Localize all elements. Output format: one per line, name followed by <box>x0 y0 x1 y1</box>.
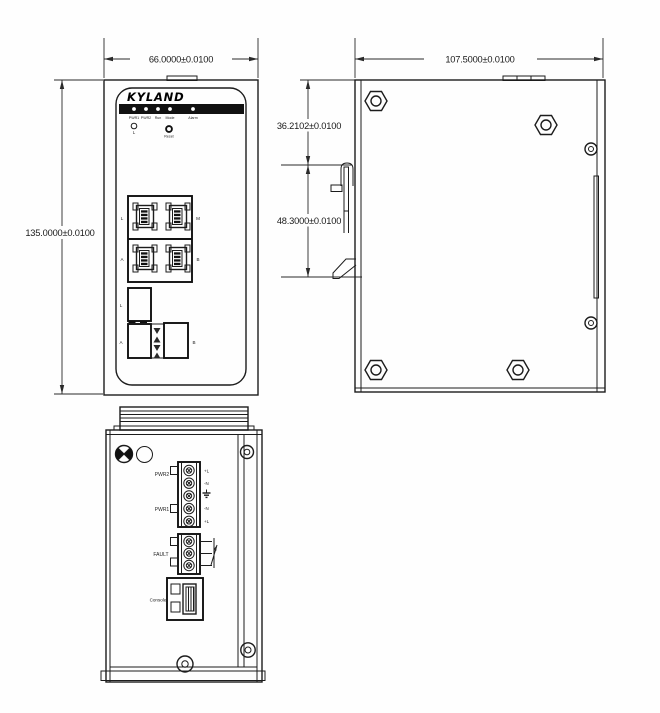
fault-terminal-block: FAULT <box>153 534 217 574</box>
ground-bolt-icon <box>116 446 133 463</box>
link-led-label: L <box>133 130 136 135</box>
hex-screw-icon <box>365 361 387 380</box>
round-screw-icon <box>585 317 597 329</box>
power-terminal-block: PWR2 PWR1 +L -N -N +L <box>155 462 211 527</box>
fiber-label-top: L <box>120 303 123 308</box>
rj45-label-top-right: M <box>196 216 200 221</box>
din-clip-ribs <box>114 407 254 430</box>
led-label-pwr2: PWR2 <box>141 116 151 120</box>
terminal-screw-icon <box>184 478 194 488</box>
pwr2-label: PWR2 <box>155 472 170 478</box>
reset-button-icon <box>166 126 172 132</box>
pin-label-plus-l-1: +L <box>204 469 210 474</box>
front-width-value: 66.0000±0.0100 <box>149 55 213 65</box>
fiber-rx-arrow-icon <box>154 337 161 343</box>
led-mode-icon <box>168 107 172 111</box>
terminal-screw-icon <box>184 536 194 546</box>
pin-label-plus-l-2: +L <box>204 519 210 524</box>
led-label-run: Run <box>155 116 162 120</box>
led-pwr1-icon <box>132 107 136 111</box>
pwr1-label: PWR1 <box>155 507 170 513</box>
fiber-label-right: B <box>192 340 195 345</box>
led-label-alarm: Alarm <box>188 116 197 120</box>
terminal-screw-icon <box>184 560 194 570</box>
front-controls: L Reset <box>131 123 173 138</box>
round-screw-icon <box>241 643 255 657</box>
front-width-dimension: 66.0000±0.0100 <box>104 38 258 78</box>
hex-screw-icon <box>365 92 387 111</box>
relay-contact-icon <box>200 538 217 568</box>
round-screw-icon <box>585 143 597 155</box>
led-pwr2-icon <box>144 107 148 111</box>
bottom-view: PWR2 PWR1 +L -N -N +L FAULT <box>101 407 265 682</box>
rj45-label-top-left: L <box>121 216 124 221</box>
led-bar: PWR1 PWR2 Run Mode Alarm <box>119 104 244 120</box>
fiber-tx-arrow2-icon <box>154 345 161 351</box>
rj45-port-3 <box>133 245 157 272</box>
pin-label-minus-n-1: -N <box>204 481 209 486</box>
terminal-screw-icon <box>184 503 194 513</box>
link-led-icon <box>131 123 137 129</box>
bottom-enclosure <box>101 430 265 682</box>
rj45-label-bottom-right: B <box>196 257 199 262</box>
front-height-dimension: 135.0000±0.0100 <box>11 80 109 394</box>
led-alarm-icon <box>191 107 195 111</box>
clip-offset-value: 36.2102±0.0100 <box>277 121 341 131</box>
side-depth-value: 107.5000±0.0100 <box>445 55 514 65</box>
din-clip-dimensions: 36.2102±0.0100 48.3000±0.0100 <box>268 80 362 277</box>
led-run-icon <box>156 107 160 111</box>
fiber-port-block: L A B <box>119 288 195 359</box>
front-view: 66.0000±0.0100 135.0000±0.0100 KYLAND <box>11 38 258 395</box>
rj45-label-bottom-left: A <box>120 257 124 262</box>
drawing-svg: 66.0000±0.0100 135.0000±0.0100 KYLAND <box>0 0 660 713</box>
terminal-screw-icon <box>184 548 194 558</box>
fault-label: FAULT <box>153 552 168 558</box>
brand-logo: KYLAND <box>127 90 184 104</box>
side-view: 107.5000±0.0100 36.2102±0.0100 48.3000±0… <box>268 38 605 392</box>
round-screw-icon <box>241 446 254 459</box>
console-port: Console <box>150 578 203 620</box>
terminal-screw-icon <box>184 516 194 526</box>
round-screw-icon <box>177 656 193 672</box>
side-enclosure <box>355 76 605 392</box>
rj45-port-block: L M A B <box>120 196 200 282</box>
fiber-rx-arrow2-icon <box>154 353 161 359</box>
rj45-port-1 <box>133 203 157 230</box>
terminal-screw-icon <box>184 491 194 501</box>
mount-hole-icon <box>137 447 153 463</box>
hex-screw-icon <box>507 361 529 380</box>
side-depth-dimension: 107.5000±0.0100 <box>355 38 603 78</box>
terminal-screw-icon <box>184 465 194 475</box>
pin-label-minus-n-2: -N <box>204 506 209 511</box>
led-label-pwr1: PWR1 <box>129 116 139 120</box>
fiber-label-left: A <box>119 340 123 345</box>
dimensional-drawing: 66.0000±0.0100 135.0000±0.0100 KYLAND <box>0 0 660 713</box>
clip-span-value: 48.3000±0.0100 <box>277 216 341 226</box>
rj45-port-4 <box>166 245 190 272</box>
front-height-value: 135.0000±0.0100 <box>25 228 94 238</box>
fiber-tx-arrow-icon <box>154 328 161 334</box>
earth-symbol-icon <box>203 490 211 498</box>
hex-screw-icon <box>535 116 557 135</box>
led-label-mode: Mode <box>166 116 175 120</box>
reset-label: Reset <box>164 135 173 139</box>
console-label: Console <box>150 598 167 603</box>
rj45-port-2 <box>166 203 190 230</box>
